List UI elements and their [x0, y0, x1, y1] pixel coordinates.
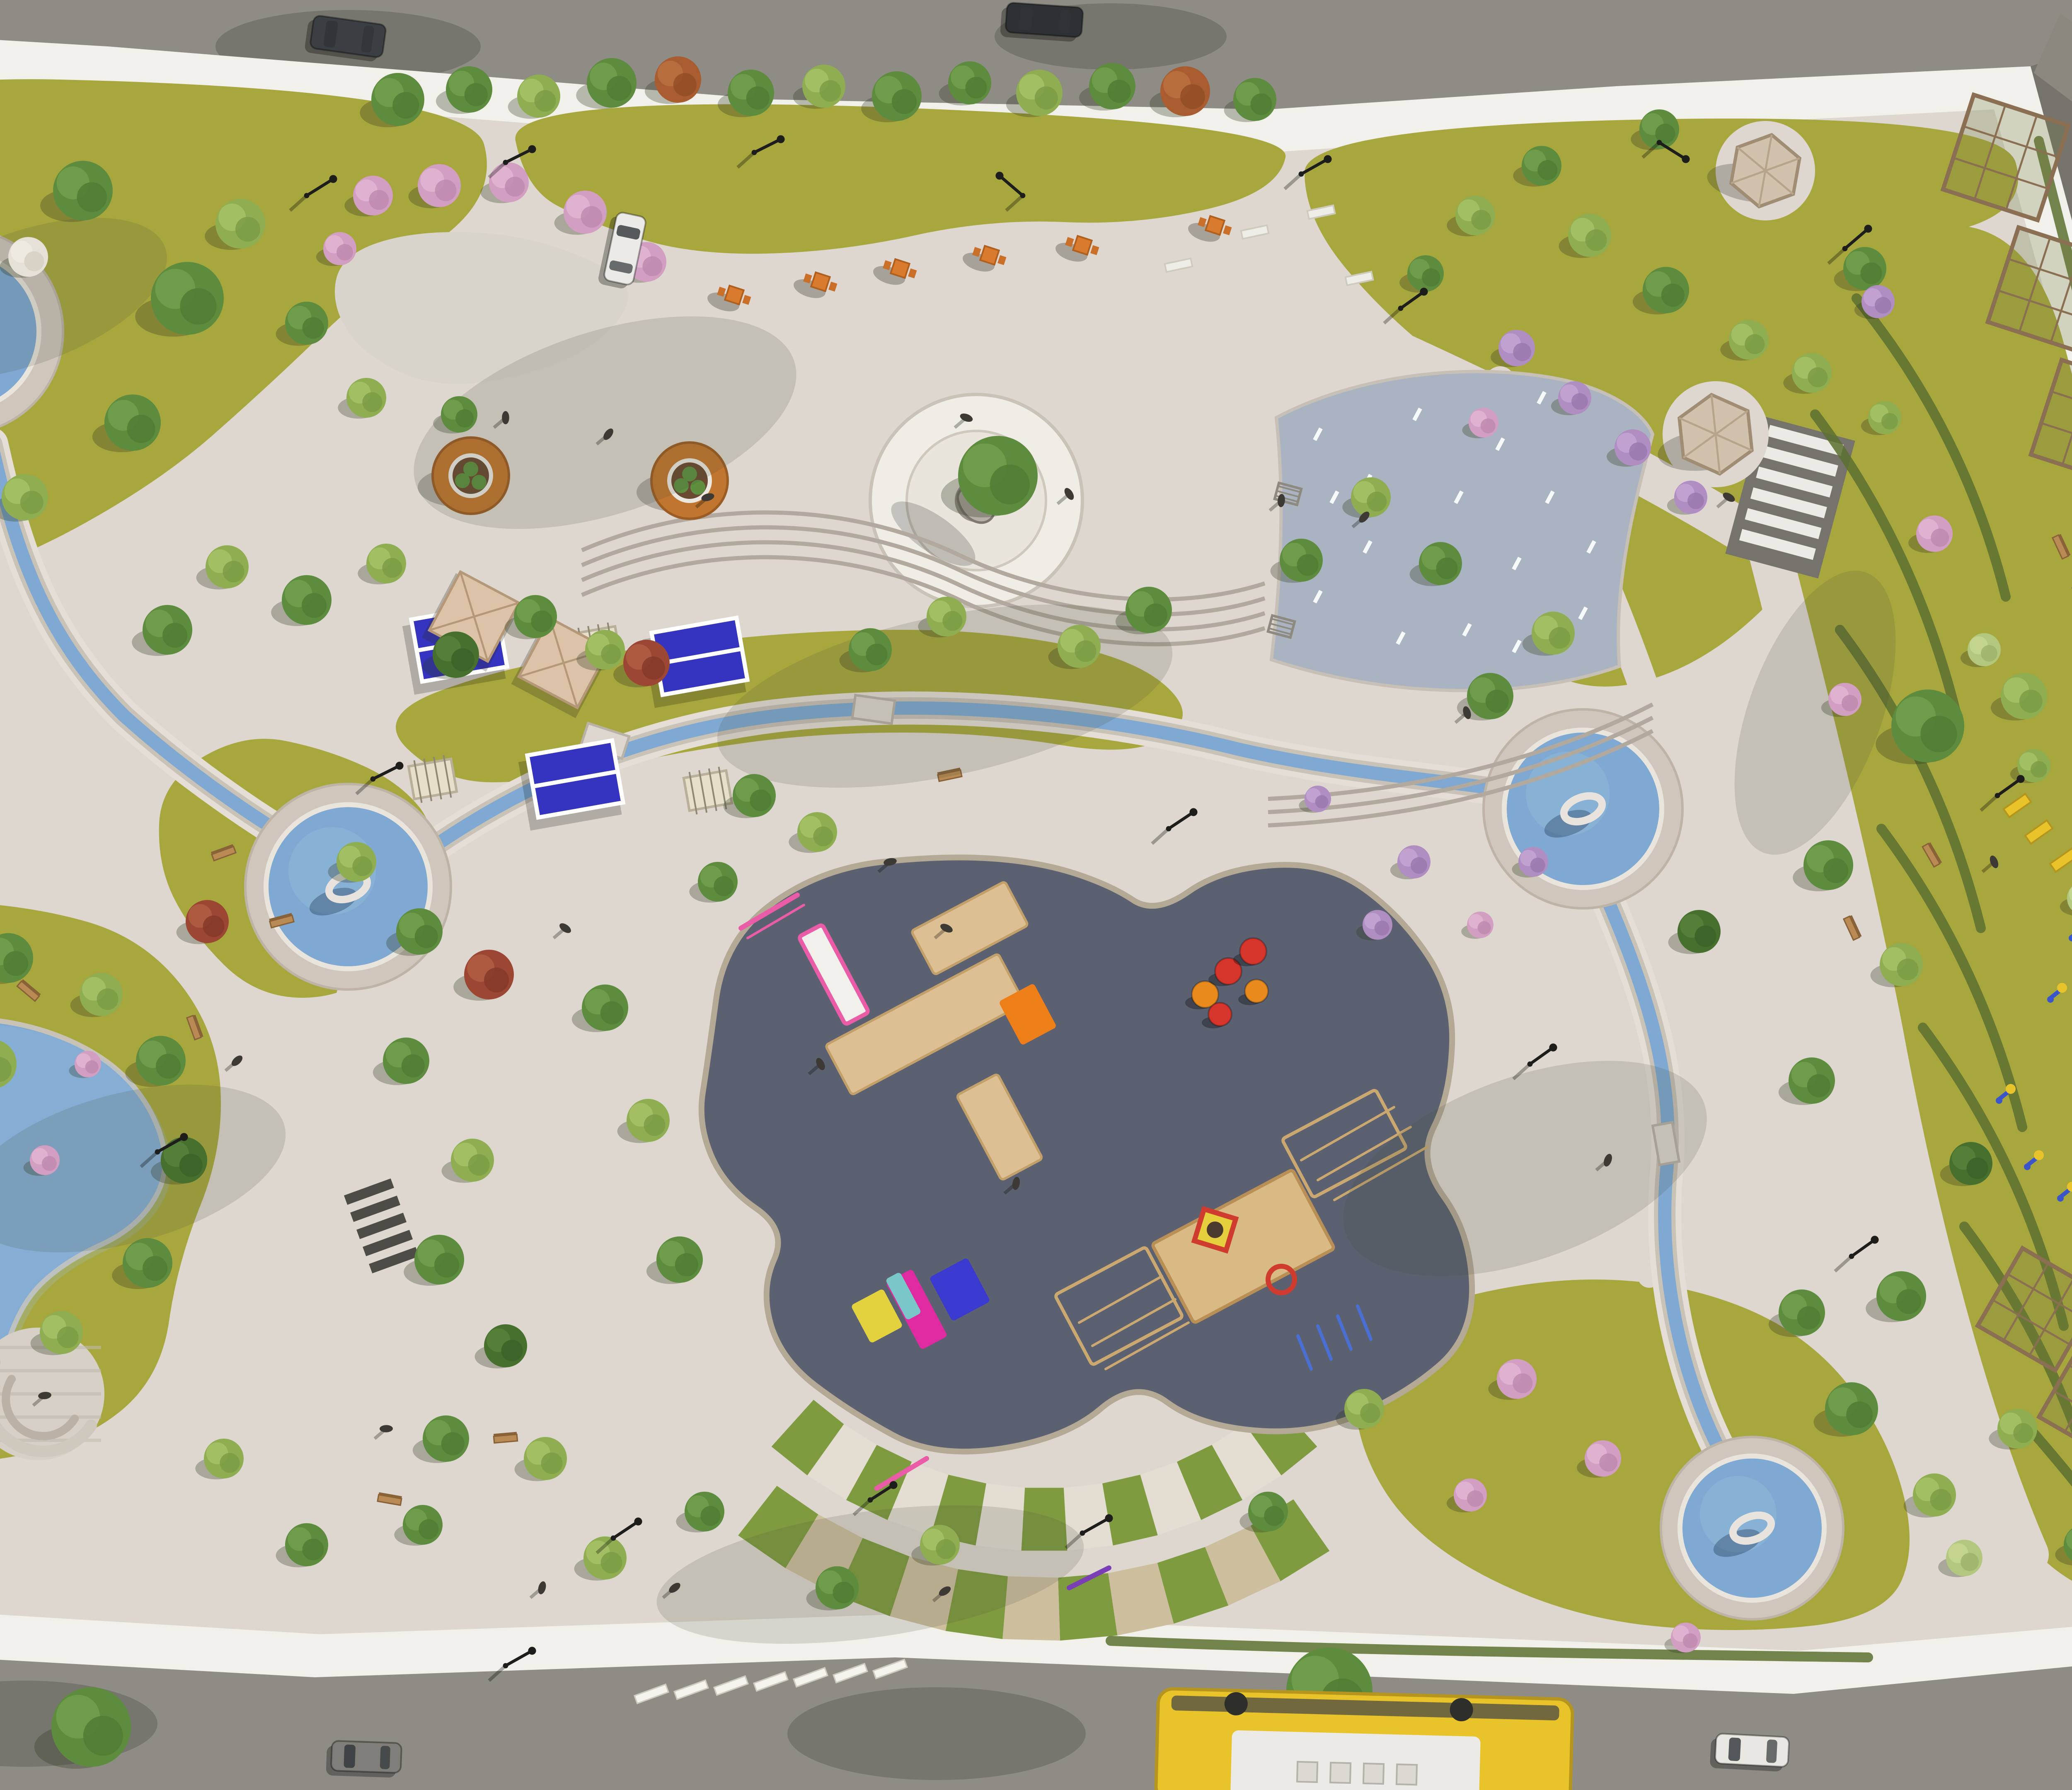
foosball-table [408, 754, 457, 804]
aerial-view-canvas [0, 0, 2072, 1790]
fountain-pool [245, 784, 451, 989]
park-masterplan-render [0, 0, 2072, 1790]
car [1710, 1733, 1789, 1772]
fountain-pool [1484, 709, 1682, 908]
car [326, 1741, 402, 1778]
fountain-pool [1661, 1437, 1843, 1619]
splash-pad [1268, 372, 1653, 691]
bus [1156, 1688, 1573, 1790]
car [1000, 2, 1083, 42]
